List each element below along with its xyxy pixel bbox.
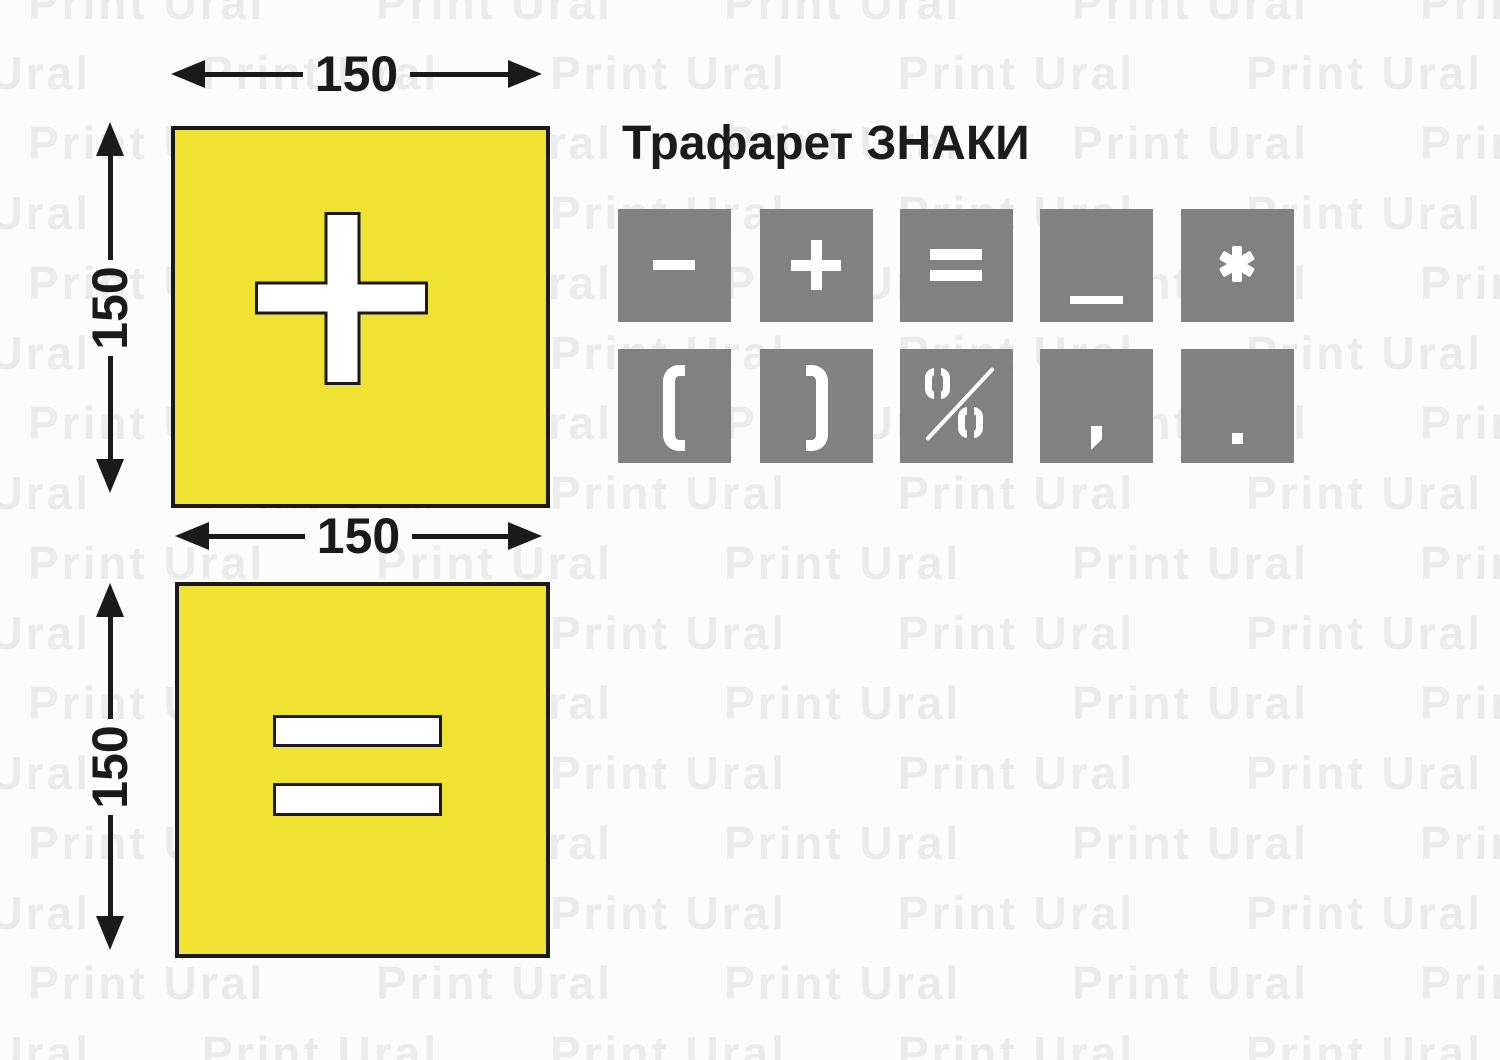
minus-icon (653, 260, 695, 270)
plus-cutout-icon (255, 212, 428, 385)
stencil-tile-comma (1040, 349, 1153, 463)
dimension-height-plus: 150 (82, 122, 138, 493)
stencil-tile-paren-open (618, 349, 731, 463)
stencil-tile-equals (900, 209, 1013, 322)
dimension-line (108, 156, 113, 260)
dimension-line (410, 72, 508, 77)
percent-top-ring (925, 368, 950, 399)
dimension-label-wrap: 150 (82, 719, 138, 815)
equals-cutout-bottom-bar (273, 783, 442, 816)
dimension-width-plus-label: 150 (303, 49, 410, 99)
dimension-label-wrap: 150 (82, 260, 138, 356)
paren-close-icon (806, 365, 828, 451)
dimension-height-plus-label: 150 (85, 266, 135, 349)
arrow-left-icon (175, 522, 209, 550)
asterisk-icon (1219, 246, 1255, 282)
underscore-icon (1070, 296, 1123, 304)
dimension-line (108, 356, 113, 460)
dimension-height-equals: 150 (82, 583, 138, 950)
stencil-tile-paren-close (760, 349, 873, 463)
arrow-down-icon (96, 459, 124, 493)
plus-icon (791, 240, 841, 290)
arrow-right-icon (508, 522, 542, 550)
stencil-tile-plus (760, 209, 873, 322)
paren-open-icon (663, 365, 685, 451)
dimension-width-equals-label: 150 (305, 511, 412, 561)
equals-cutout-top-bar (273, 715, 442, 747)
dimension-line (205, 72, 303, 77)
stencil-product-sheet: Print UralPrint UralPrint UralPrint Ural… (0, 0, 1500, 1060)
arrow-up-icon (96, 583, 124, 617)
stencil-tile-underscore (1040, 209, 1153, 322)
stencil-tile-period (1181, 349, 1294, 463)
page-title: Трафарет ЗНАКИ (622, 120, 1030, 168)
stencil-tile-minus (618, 209, 731, 322)
dimension-line (108, 815, 113, 917)
equals-icon (930, 270, 982, 281)
arrow-left-icon (171, 60, 205, 88)
dimension-line (108, 617, 113, 719)
dimension-width-plus: 150 (171, 46, 542, 102)
percent-bottom-ring (958, 407, 983, 438)
dimension-line (412, 534, 508, 539)
arrow-up-icon (96, 122, 124, 156)
period-icon (1232, 433, 1243, 444)
arrow-down-icon (96, 916, 124, 950)
stencil-tile-percent (900, 349, 1013, 463)
dimension-width-equals: 150 (175, 508, 542, 564)
comma-icon (1091, 426, 1102, 450)
dimension-line (209, 534, 305, 539)
equals-icon (930, 249, 982, 260)
arrow-right-icon (508, 60, 542, 88)
percent-icon (900, 349, 1013, 463)
stencil-square-equals (175, 582, 550, 958)
stencil-tile-asterisk (1181, 209, 1294, 322)
stencil-square-plus (171, 126, 550, 508)
dimension-height-equals-label: 150 (85, 725, 135, 808)
